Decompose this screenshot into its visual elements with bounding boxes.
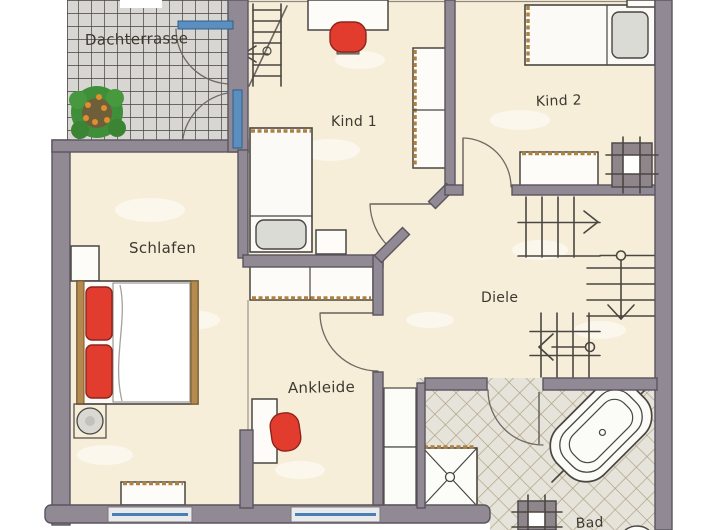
label-ankleide: Ankleide (288, 378, 355, 397)
wall-schlafen-ankleide (240, 430, 253, 508)
single-bed (525, 5, 655, 65)
label-dachterrasse: Dachterrasse (85, 29, 189, 49)
label-diele: Diele (481, 290, 518, 306)
sideboard (121, 482, 185, 505)
wall-schlafen-kind1 (238, 150, 248, 258)
chimney-bottom (512, 495, 562, 530)
wall-bad-top-left (425, 378, 487, 390)
wall-outer-left (52, 140, 70, 525)
label-kind2: Kind 2 (536, 92, 583, 110)
wardrobe (413, 48, 447, 168)
wall-niche (71, 246, 99, 281)
outside-right (672, 0, 720, 530)
shower (423, 447, 477, 506)
nightstand (316, 230, 346, 254)
label-schlafen: Schlafen (129, 239, 196, 257)
wall-kind1-kind2 (445, 0, 455, 185)
window-ankleide (291, 507, 380, 522)
terrace-top-glass-door (178, 21, 233, 29)
terrace-top-gap (120, 0, 162, 8)
single-bed (250, 128, 312, 252)
bad-entry-doors (384, 388, 416, 505)
chimney-right (606, 137, 658, 193)
floor-plan: Dachterrasse Kind 1 Kind 2 Schlafen Diel… (0, 0, 720, 530)
double-bed (77, 281, 198, 404)
plant (69, 86, 126, 139)
label-kind1: Kind 1 (331, 114, 377, 130)
sideboard (520, 152, 598, 187)
wall-ankleide-diele-upper (373, 255, 383, 315)
shelf (627, 0, 655, 7)
label-bad: Bad (575, 515, 604, 530)
outside-bottom (0, 523, 490, 530)
shower-drain (446, 473, 455, 482)
bed-pillow (256, 220, 306, 249)
wall-terrace-bottom (52, 140, 248, 152)
terrace-side-glass-door (233, 90, 242, 148)
bed-pillow-red (86, 287, 112, 340)
wall-ankleide-diele-lower (373, 372, 383, 505)
window-schlafen (108, 507, 192, 522)
outside-top-left (0, 0, 67, 140)
bed-pillow-red (86, 345, 112, 398)
built-in-wardrobe (250, 265, 373, 300)
wall-kind1-ankleide (243, 255, 383, 267)
wall-outer-right (655, 0, 672, 530)
wall-bad-left (417, 383, 425, 508)
wall-kind2-diele-left (445, 185, 463, 195)
desk-chair (330, 22, 366, 54)
bed-pillow (612, 12, 648, 58)
wall-bad-top-right (543, 378, 657, 390)
